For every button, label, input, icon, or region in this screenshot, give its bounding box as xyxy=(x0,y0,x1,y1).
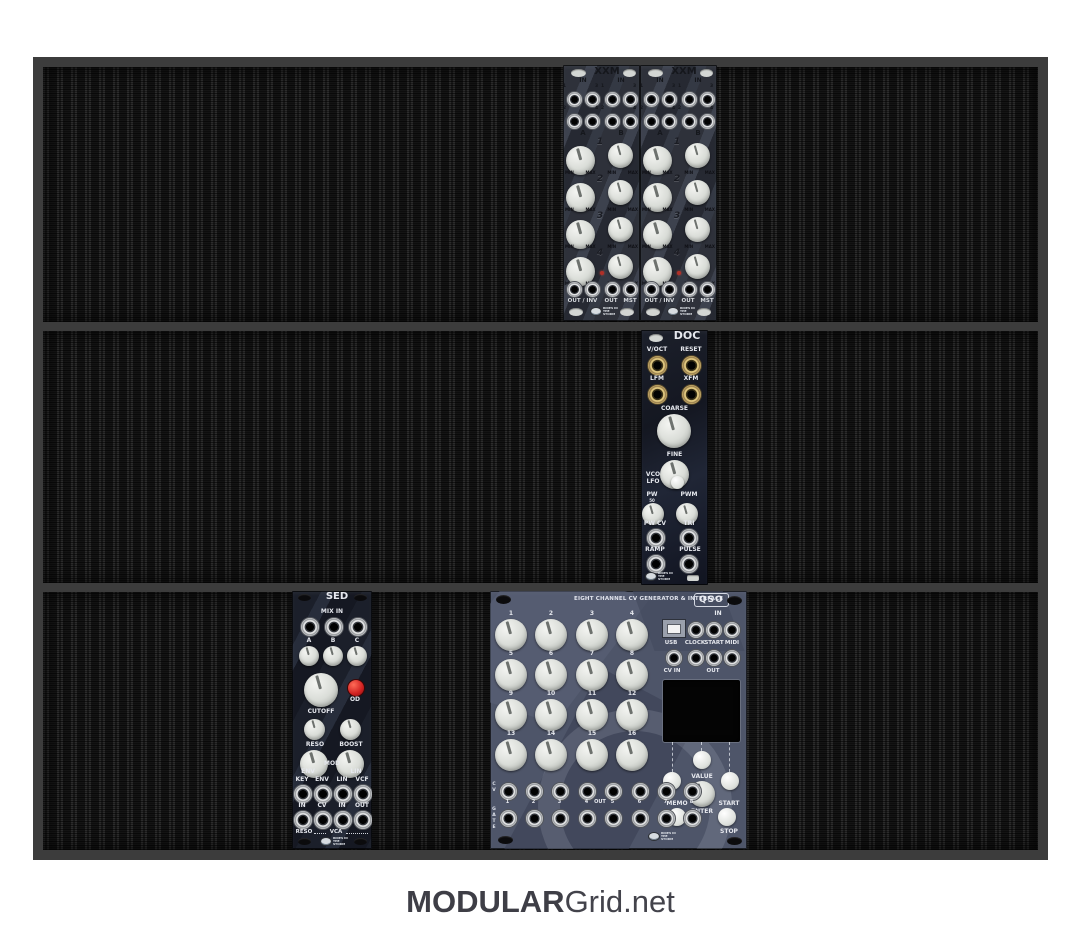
mounting-hole xyxy=(496,595,511,604)
input-jack xyxy=(643,91,660,108)
voct-label: V/OCT xyxy=(641,347,673,354)
usb-port xyxy=(662,619,686,638)
on-led xyxy=(677,271,681,275)
cv-knob-14 xyxy=(535,739,567,771)
cv-label: CV xyxy=(312,803,332,810)
mix-b-label: B xyxy=(324,638,342,645)
midi-label: MIDI xyxy=(722,640,742,646)
channel-strip-3: 3 MINMAXMINMAX xyxy=(563,213,640,250)
cv-knob-label: 8 xyxy=(615,651,649,658)
xfm-jack xyxy=(681,384,702,405)
usb-label: USB xyxy=(657,640,685,646)
rack-row-1[interactable] xyxy=(43,67,1038,322)
cv-knob-label: 10 xyxy=(534,691,568,698)
channel-number: 3 xyxy=(667,211,687,221)
brand-logo-icon xyxy=(667,307,679,316)
out-number: 2 xyxy=(525,800,542,806)
out-inv-jack xyxy=(566,281,583,298)
stop-label: STOP xyxy=(714,829,744,836)
input-jack xyxy=(604,91,621,108)
coarse-label: COARSE xyxy=(641,406,708,413)
midi-in-jack xyxy=(723,621,741,639)
start-jack xyxy=(705,621,723,639)
out-label: OUT xyxy=(696,668,730,674)
cv-knob-11 xyxy=(576,699,608,731)
input-jack xyxy=(681,91,698,108)
brand-rest: Grid.net xyxy=(565,884,675,919)
module-heading: EIGHT CHANNEL CV GENERATOR & INTERFACE xyxy=(574,596,692,602)
cv-knob-6 xyxy=(535,659,567,691)
min-label: MIN xyxy=(642,170,651,175)
module-title: SED xyxy=(320,591,354,602)
start-button-label: START xyxy=(714,801,744,808)
jack-number: 4 xyxy=(672,107,675,112)
max-label: MAX xyxy=(628,207,638,212)
mix-input-jack xyxy=(324,617,344,637)
cv-knob-label: 11 xyxy=(575,691,609,698)
input-jack xyxy=(643,113,660,130)
input-jack xyxy=(661,91,678,108)
reso-group-label: RESO xyxy=(292,829,316,835)
reset-label: RESET xyxy=(675,347,707,354)
channel-aux-knob xyxy=(685,254,710,279)
in-label: IN xyxy=(292,803,312,810)
cv-column-label: CV xyxy=(491,782,496,794)
module-xxm-1[interactable]: XXM IN 1 3 2 4 A IN 1 3 2 4 B 1 xyxy=(563,65,640,321)
start-out-jack xyxy=(705,649,723,667)
input-jack xyxy=(622,91,639,108)
cv-knob-label: 7 xyxy=(575,651,609,658)
channel-strip-2: 2 MINMAXMINMAX xyxy=(563,176,640,213)
jack-number: 2 xyxy=(640,107,643,112)
brand-bold: MODULAR xyxy=(406,884,564,919)
voct-jack xyxy=(647,355,668,376)
channel-number: 1 xyxy=(667,137,687,147)
module-doc[interactable]: DOC V/OCT RESET LFM XFM COARSE FINE VCO … xyxy=(641,330,708,585)
brand-logo-icon xyxy=(320,837,332,846)
cv-knob-label: 12 xyxy=(615,691,649,698)
mounting-hole xyxy=(620,308,634,316)
mounting-hole xyxy=(727,837,742,845)
max-label: MAX xyxy=(705,207,715,212)
value-label: VALUE xyxy=(686,774,718,781)
gate-out-jack-3 xyxy=(551,809,570,828)
modulargrid-rack-page: XXM IN 1 3 2 4 A IN 1 3 2 4 B 1 xyxy=(0,0,1081,925)
cv-in-label: CV IN xyxy=(657,668,687,674)
tri-jack xyxy=(679,528,699,548)
boost-label: BOOST xyxy=(334,742,368,749)
cv-knob-label: 5 xyxy=(494,651,528,658)
rack-rail-divider xyxy=(43,322,1038,331)
cv-knob-1 xyxy=(495,619,527,651)
jack-number: 4 xyxy=(633,107,636,112)
brand-logo-icon xyxy=(645,572,657,581)
brand-logo-text: RIDES IN THE STORM xyxy=(658,572,675,581)
input-jack xyxy=(566,113,583,130)
cv-knob-3 xyxy=(576,619,608,651)
reset-jack xyxy=(681,355,702,376)
cv-knob-label: 2 xyxy=(534,611,568,618)
mounting-hole xyxy=(700,69,713,77)
channel-aux-knob xyxy=(608,180,633,205)
divider-dots xyxy=(346,833,368,834)
reso-in-jack xyxy=(293,810,313,830)
on-led xyxy=(600,271,604,275)
cutoff-label: CUTOFF xyxy=(300,709,342,716)
brand-logo-text: RIDES IN THE STORM xyxy=(680,307,697,316)
channel-number: 3 xyxy=(590,211,610,221)
coarse-knob xyxy=(657,414,691,448)
jack-number: 2 xyxy=(678,107,681,112)
brand-logo: RIDES IN THE STORM xyxy=(667,307,697,316)
mix-c-label: C xyxy=(348,638,366,645)
cv-knob-16 xyxy=(616,739,648,771)
rack-row-2[interactable] xyxy=(43,331,1038,583)
cv-knob-4 xyxy=(616,619,648,651)
usb-port-inner xyxy=(667,624,681,634)
mix-input-jack xyxy=(300,617,320,637)
channel-number: 2 xyxy=(590,174,610,184)
lfm-jack xyxy=(647,384,668,405)
mounting-hole xyxy=(298,594,311,601)
cv-knob-8 xyxy=(616,659,648,691)
lin-label: LIN xyxy=(342,769,370,776)
max-label: MAX xyxy=(628,170,638,175)
out-inv-label: OUT / INV xyxy=(563,298,602,304)
channel-number: 4 xyxy=(590,248,610,258)
pulse-jack xyxy=(679,554,699,574)
min-label: MIN xyxy=(642,244,651,249)
cv-knob-12 xyxy=(616,699,648,731)
gate-out-jack-8 xyxy=(683,809,702,828)
min-label: MIN xyxy=(565,170,574,175)
nav-right-button xyxy=(721,772,739,790)
mounting-hole xyxy=(648,69,663,77)
brand-logo: RIDES IN THE STORM xyxy=(645,572,675,581)
mounting-hole xyxy=(649,334,663,342)
clock-jack xyxy=(687,621,705,639)
clock-out-jack xyxy=(687,649,705,667)
cv-in-jack xyxy=(665,649,683,667)
channel-aux-knob xyxy=(608,254,633,279)
display-screen xyxy=(662,679,741,743)
midi-out-jack xyxy=(723,649,741,667)
max-label: MAX xyxy=(628,244,638,249)
input-jack xyxy=(622,113,639,130)
channel-aux-knob xyxy=(608,217,633,242)
key-label: KEY xyxy=(292,777,312,784)
module-sed[interactable]: SED MIX IN A B C OD CUTOFF RESO BOOST MO… xyxy=(292,591,372,849)
xfm-label: XFM xyxy=(675,376,707,383)
module-xxm-2[interactable]: XXM IN 1 3 2 4 A IN 1 3 2 4 B 1 xyxy=(640,65,717,321)
cv-knob-10 xyxy=(535,699,567,731)
midi-in-label: IN xyxy=(696,611,740,618)
channel-strip-1: 1 MINMAXMINMAX xyxy=(640,139,717,176)
brand-logo: RIDES IN THE STORM xyxy=(648,832,678,841)
ramp-label: RAMP xyxy=(641,547,669,554)
out-inv-label: OUT / INV xyxy=(640,298,679,304)
out-number: 5 xyxy=(604,800,621,806)
channel-strip-3: 3 MINMAXMINMAX xyxy=(640,213,717,250)
jack-number: 1 xyxy=(640,85,643,90)
module-title: XXM xyxy=(593,66,621,77)
min-label: MIN xyxy=(565,244,574,249)
pw-cv-jack xyxy=(646,528,666,548)
connector-line xyxy=(672,742,673,772)
channel-aux-knob xyxy=(685,143,710,168)
out-label: OUT xyxy=(600,298,622,304)
out-inv-jack xyxy=(661,281,678,298)
input-group-b: IN 1 3 2 4 B xyxy=(680,78,716,140)
mounting-hole xyxy=(354,838,367,845)
input-jack xyxy=(584,113,601,130)
mix-a-knob xyxy=(299,646,319,666)
lfo-label: LFO xyxy=(643,479,663,486)
mounting-hole xyxy=(354,594,367,601)
channel-aux-knob xyxy=(608,143,633,168)
mix-in-label: MIX IN xyxy=(302,609,362,616)
channel-number: 2 xyxy=(667,174,687,184)
vca-in-jack xyxy=(333,810,353,830)
cv-knob-13 xyxy=(495,739,527,771)
cv-knob-label: 16 xyxy=(615,731,649,738)
tri-label: TRI xyxy=(677,521,701,528)
od-label: OD xyxy=(343,697,367,704)
mod-label: MOD xyxy=(318,761,346,768)
out-label: OUT xyxy=(352,803,372,810)
cv-knob-5 xyxy=(495,659,527,691)
divider-dots xyxy=(314,833,326,834)
input-jack xyxy=(699,113,716,130)
in-label: IN xyxy=(332,803,352,810)
env-jack-label: ENV xyxy=(312,777,332,784)
gate-column-label: GATE xyxy=(491,807,496,831)
brand-logo-text: RIDES IN THE STORM xyxy=(603,307,620,316)
boost-knob xyxy=(340,719,361,740)
env-label: ENV xyxy=(294,769,322,776)
input-jack xyxy=(604,113,621,130)
env-cv-jack xyxy=(313,784,333,804)
reso-label: RESO xyxy=(298,742,332,749)
cv-knob-7 xyxy=(576,659,608,691)
out-jack xyxy=(681,281,698,298)
pulse-label: PULSE xyxy=(675,547,705,554)
cv-knob-2 xyxy=(535,619,567,651)
gate-out-jack-5 xyxy=(604,809,623,828)
jack-number: 4 xyxy=(595,107,598,112)
jack-number: 3 xyxy=(595,85,598,90)
cutoff-knob xyxy=(304,673,338,707)
brand-logo-text: RIDES IN THE STORM xyxy=(661,832,678,841)
module-qso[interactable]: EIGHT CHANNEL CV GENERATOR & INTERFACE Q… xyxy=(490,591,747,849)
channel-number: 4 xyxy=(667,248,687,258)
nav-up-button xyxy=(693,751,711,769)
reso-knob xyxy=(304,719,325,740)
vca-out-jack xyxy=(353,810,372,830)
mst-label: MST xyxy=(620,298,640,304)
mix-b-knob xyxy=(323,646,343,666)
mounting-hole xyxy=(569,308,583,316)
modulargrid-brand: MODULARGrid.net xyxy=(0,884,1081,920)
connector-line xyxy=(729,742,730,772)
input-group-b: IN 1 3 2 4 B xyxy=(603,78,639,140)
cv-knob-label: 3 xyxy=(575,611,609,618)
input-group-a: IN 1 3 2 4 A xyxy=(565,78,601,140)
jack-number: 3 xyxy=(710,85,713,90)
mounting-hole xyxy=(498,836,513,844)
pw-cv-label: PW CV xyxy=(641,521,669,528)
out-number: 1 xyxy=(499,800,516,806)
cv-knob-9 xyxy=(495,699,527,731)
cv-knob-label: 13 xyxy=(494,731,528,738)
brand-logo-text: RIDES IN THE STORM xyxy=(333,837,350,846)
min-label: MIN xyxy=(642,207,651,212)
start-stop-button xyxy=(718,808,736,826)
out-number: 3 xyxy=(551,800,568,806)
brand-logo-icon xyxy=(648,832,660,841)
lin-jack-label: LIN xyxy=(332,777,352,784)
module-title: XXM xyxy=(670,66,698,77)
min-label: MIN xyxy=(565,207,574,212)
out-number: 6 xyxy=(631,800,648,806)
out-inv-jack xyxy=(584,281,601,298)
vco-lfo-button xyxy=(671,476,684,489)
input-jack xyxy=(699,91,716,108)
cv-knob-15 xyxy=(576,739,608,771)
gate-out-jack-4 xyxy=(578,809,597,828)
brand-logo-icon xyxy=(590,307,602,316)
gate-out-jack-1 xyxy=(499,809,518,828)
cv-knob-label: 9 xyxy=(494,691,528,698)
mounting-hole xyxy=(623,69,636,77)
gate-out-jack-6 xyxy=(631,809,650,828)
jack-number: 2 xyxy=(563,107,566,112)
channel-aux-knob xyxy=(685,180,710,205)
gate-out-jack-2 xyxy=(525,809,544,828)
out-inv-jack xyxy=(643,281,660,298)
max-label: MAX xyxy=(705,244,715,249)
brand-logo: RIDES IN THE STORM xyxy=(320,837,350,846)
mst-jack xyxy=(622,281,639,298)
max-label: MAX xyxy=(705,170,715,175)
jack-number: 4 xyxy=(710,107,713,112)
jack-number: 1 xyxy=(601,85,604,90)
lin-in-jack xyxy=(333,784,353,804)
input-group-a: IN 1 3 2 4 A xyxy=(642,78,678,140)
module-title: QSO xyxy=(694,593,729,607)
connector-line xyxy=(701,742,702,751)
cv-knob-label: 6 xyxy=(534,651,568,658)
vca-group-label: VCA xyxy=(326,829,346,835)
jack-number: 3 xyxy=(672,85,675,90)
cv-knob-label: 15 xyxy=(575,731,609,738)
input-jack xyxy=(661,113,678,130)
overdrive-button xyxy=(347,679,365,697)
brand-logo: RIDES IN THE STORM xyxy=(590,307,620,316)
mounting-hole xyxy=(571,69,586,77)
channel-aux-knob xyxy=(685,217,710,242)
out-jack xyxy=(604,281,621,298)
pwm-label: PWM xyxy=(677,492,701,499)
input-jack xyxy=(584,91,601,108)
jack-number: 1 xyxy=(563,85,566,90)
mst-label: MST xyxy=(697,298,717,304)
mix-a-label: A xyxy=(300,638,318,645)
vcf-out-jack xyxy=(353,784,372,804)
mix-c-knob xyxy=(347,646,367,666)
module-title: DOC xyxy=(671,330,703,342)
channel-strip-2: 2 MINMAXMINMAX xyxy=(640,176,717,213)
mst-jack xyxy=(699,281,716,298)
out-label: OUT xyxy=(677,298,699,304)
mounting-hole xyxy=(687,575,699,581)
channel-strip-1: 1 MINMAXMINMAX xyxy=(563,139,640,176)
input-jack xyxy=(566,91,583,108)
mix-input-jack xyxy=(348,617,368,637)
lfm-label: LFM xyxy=(641,376,673,383)
mounting-hole xyxy=(727,596,742,605)
out-number: 7 xyxy=(657,800,674,806)
jack-number: 1 xyxy=(678,85,681,90)
mounting-hole xyxy=(646,308,660,316)
mounting-hole xyxy=(697,308,711,316)
gate-out-jack-7 xyxy=(657,809,676,828)
vcf-label: VCF xyxy=(352,777,372,784)
out-number: 8 xyxy=(683,800,700,806)
input-jack xyxy=(681,113,698,130)
cv-knob-label: 14 xyxy=(534,731,568,738)
jack-number: 2 xyxy=(601,107,604,112)
vca-cv-jack xyxy=(313,810,333,830)
cv-knob-label: 4 xyxy=(615,611,649,618)
mounting-hole xyxy=(298,838,311,845)
key-in-jack xyxy=(293,784,313,804)
cv-knob-label: 1 xyxy=(494,611,528,618)
channel-number: 1 xyxy=(590,137,610,147)
jack-number: 3 xyxy=(633,85,636,90)
fine-label: FINE xyxy=(641,452,708,459)
